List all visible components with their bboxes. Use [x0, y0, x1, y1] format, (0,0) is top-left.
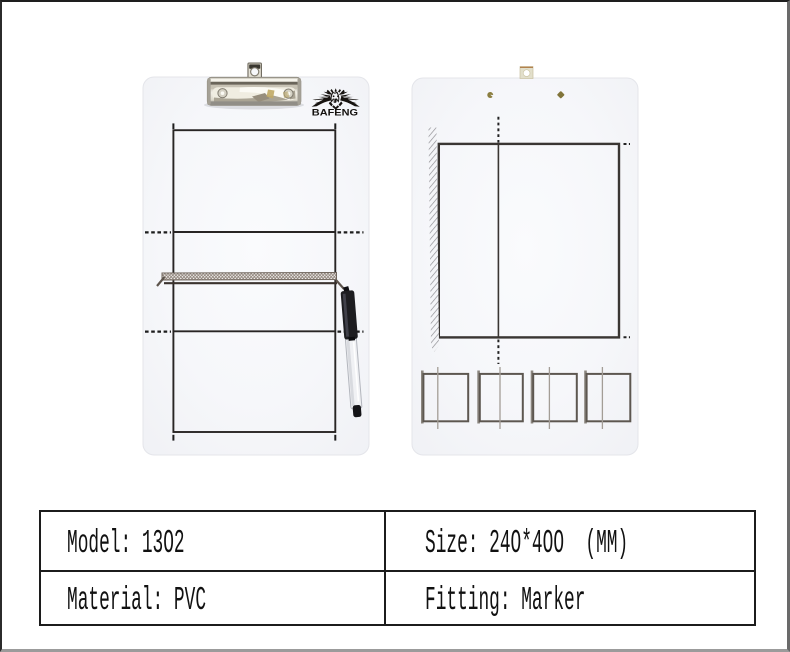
svg-text:BAFENG: BAFENG	[312, 108, 358, 118]
